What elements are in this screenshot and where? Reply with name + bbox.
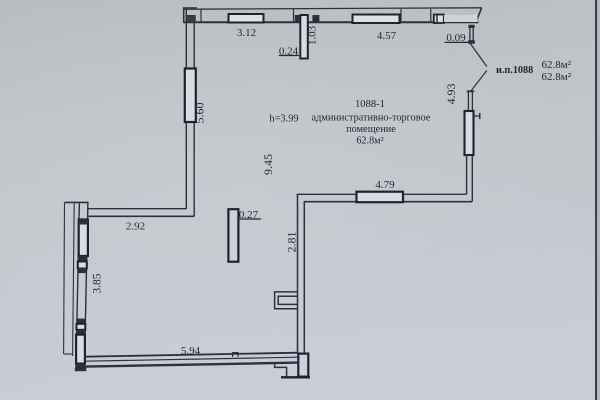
svg-text:3.85: 3.85 — [92, 273, 104, 293]
svg-text:3.12: 3.12 — [237, 27, 256, 39]
svg-text:5.94: 5.94 — [181, 345, 201, 357]
svg-text:и.п.1088: и.п.1088 — [496, 65, 533, 76]
svg-text:62.8м²: 62.8м² — [542, 59, 572, 71]
svg-text:1.03: 1.03 — [307, 25, 319, 45]
svg-text:h=3.99: h=3.99 — [269, 114, 298, 125]
svg-text:административно-торговое: административно-торговое — [312, 113, 431, 124]
svg-text:4.93: 4.93 — [444, 84, 458, 105]
svg-text:9.45: 9.45 — [261, 154, 275, 175]
svg-text:62.8м²: 62.8м² — [356, 136, 383, 147]
svg-text:62.8м²: 62.8м² — [542, 71, 572, 83]
svg-text:5.60: 5.60 — [193, 103, 207, 124]
svg-text:4.79: 4.79 — [375, 179, 395, 191]
svg-text:4.57: 4.57 — [377, 30, 397, 42]
svg-text:2.92: 2.92 — [126, 221, 145, 233]
svg-text:1088-1: 1088-1 — [355, 99, 385, 110]
svg-text:помещение: помещение — [346, 124, 396, 135]
svg-text:2.81: 2.81 — [285, 232, 299, 253]
